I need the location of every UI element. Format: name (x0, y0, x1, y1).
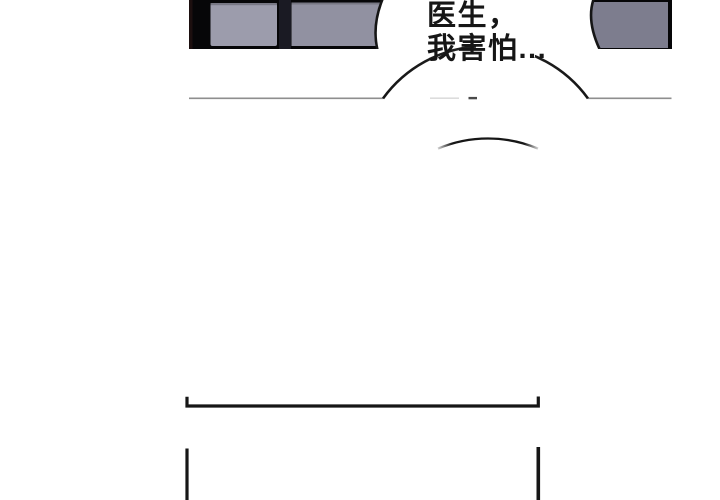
speech-bubble-text: 医生， 我害怕... (427, 0, 547, 66)
faint-dash-dark (469, 97, 478, 99)
comic-page: 医生， 我害怕... (0, 0, 720, 500)
speech-text-line-1: 医生， (427, 0, 547, 33)
top-panel-left-tint (189, 0, 193, 49)
top-panel-gap-band (279, 0, 291, 49)
faint-dash-light (430, 97, 459, 99)
speech-text-line-2: 我害怕... (427, 33, 547, 66)
gray-panel-right (589, 2, 668, 48)
gray-panel-mid-top-shade (292, 3, 391, 5)
page-background (0, 0, 720, 500)
comic-art (0, 0, 720, 500)
gray-panel-left (211, 3, 278, 46)
gray-panel-left-top-shade (211, 3, 278, 5)
